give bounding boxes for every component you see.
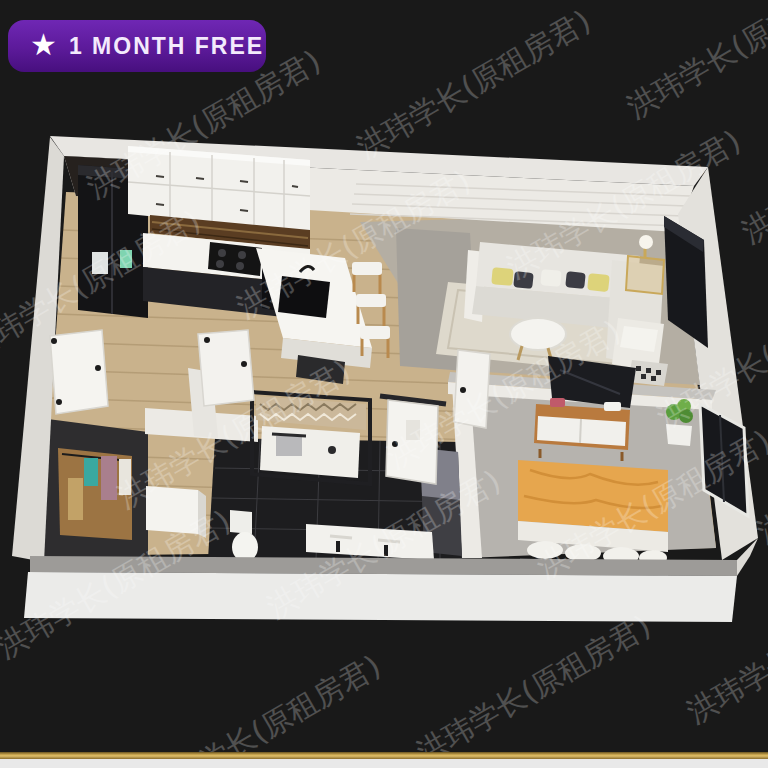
closet-door	[198, 330, 254, 406]
bottom-light-strip	[0, 759, 768, 768]
promo-badge-label: 1 MONTH FREE	[69, 33, 264, 60]
star-icon: ★	[30, 30, 57, 60]
bed	[518, 460, 668, 576]
storage-cube	[146, 486, 206, 538]
apartment-listing-image: 洪玮学长(原租房君)洪玮学长(原租房君)洪玮学长(原租房君)洪玮学长(原租房君)…	[0, 0, 768, 768]
island-sink	[278, 276, 330, 318]
gold-divider-line	[0, 752, 768, 759]
hanging-clothes	[84, 458, 98, 486]
floorplan-3d-render	[0, 0, 768, 768]
entry-door	[50, 330, 108, 414]
lamp-icon	[639, 235, 653, 249]
walk-in-closet	[36, 418, 148, 565]
floorplan-svg	[0, 0, 768, 768]
shower	[252, 392, 370, 484]
promo-badge: ★ 1 MONTH FREE	[8, 20, 266, 72]
bathroom-door	[380, 396, 446, 484]
bedroom-door	[454, 350, 490, 428]
